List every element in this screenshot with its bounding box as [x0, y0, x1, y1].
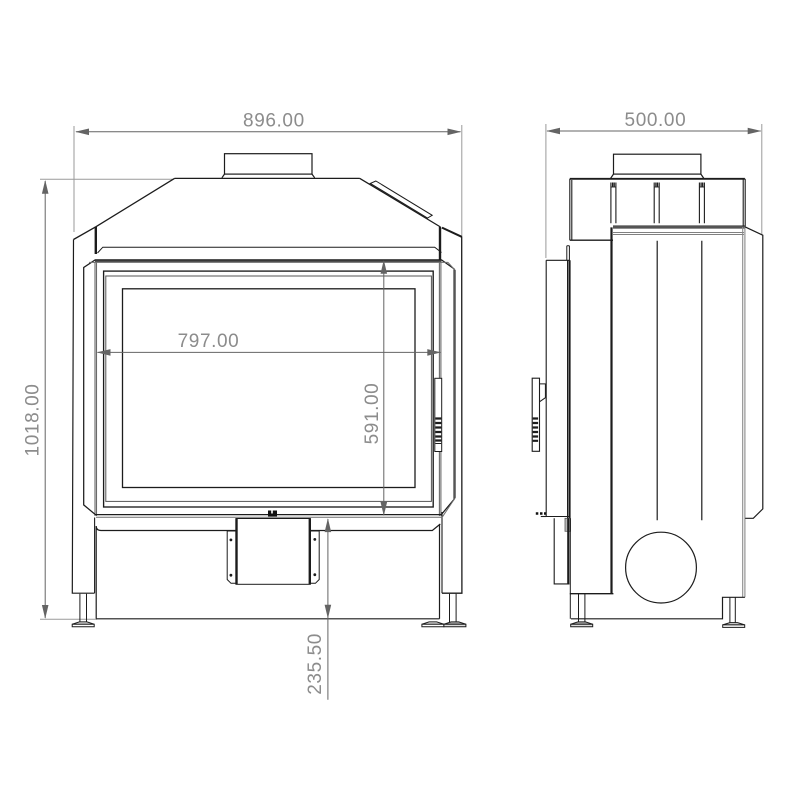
svg-text:500.00: 500.00: [625, 110, 687, 131]
svg-text:591.00: 591.00: [362, 383, 383, 445]
svg-text:896.00: 896.00: [243, 111, 305, 132]
svg-text:235.50: 235.50: [305, 633, 326, 695]
svg-text:797.00: 797.00: [178, 331, 240, 352]
svg-text:1018.00: 1018.00: [23, 384, 44, 457]
